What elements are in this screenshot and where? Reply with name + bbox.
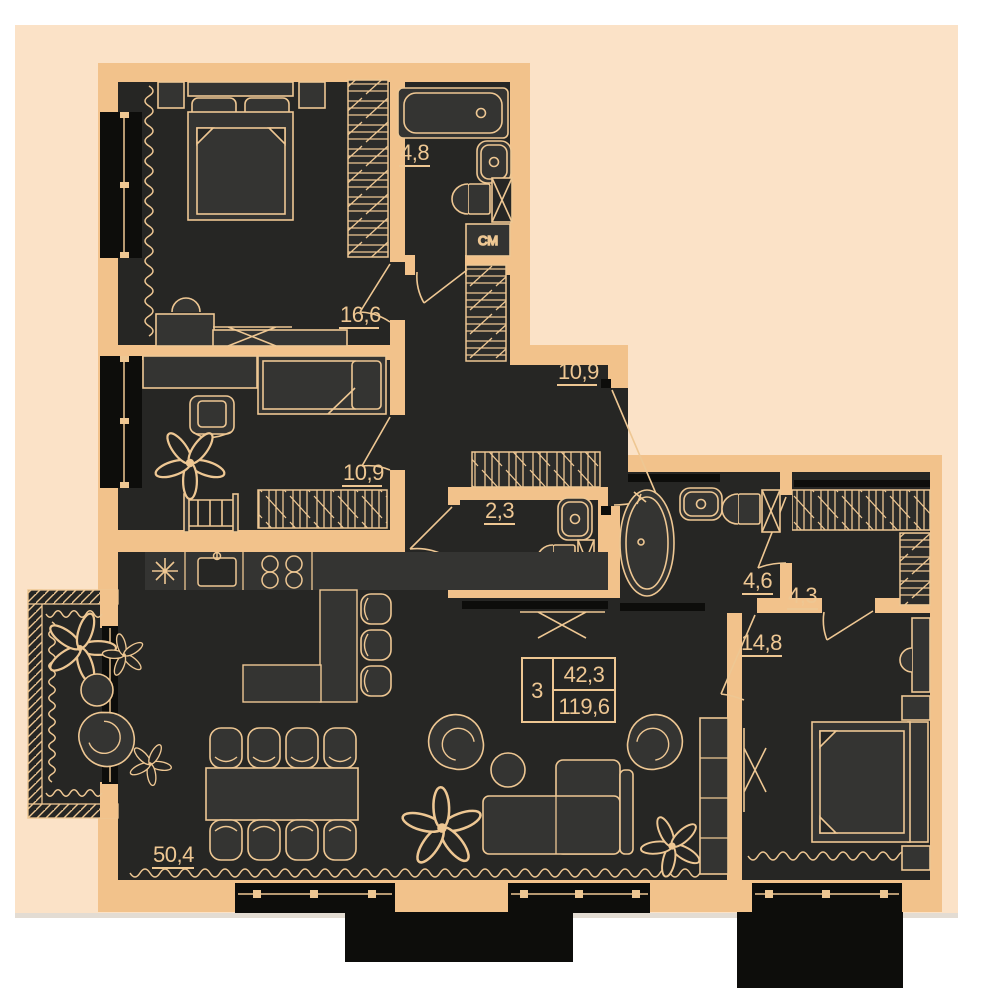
svg-text:4,3: 4,3 (788, 583, 817, 608)
nightstand (902, 696, 930, 720)
room-label-bedroom-main: 16,6 (339, 302, 381, 329)
wardrobe-hatch-icon (900, 533, 930, 605)
bed-icon (812, 722, 928, 842)
washing-machine-icon (492, 178, 512, 222)
svg-text:2,3: 2,3 (485, 498, 514, 523)
wardrobe-hatch-icon (792, 490, 930, 530)
bathtub-icon (398, 88, 508, 138)
room-label-bathroom-master: 4,6 (742, 568, 773, 595)
window-living-2 (508, 883, 650, 913)
svg-text:14,8: 14,8 (741, 630, 782, 655)
wardrobe-hatch-icon (472, 452, 600, 487)
room-label-bathroom-top: 4,8 (399, 140, 430, 167)
sink-icon (558, 498, 592, 540)
room-label-wardrobe-room: 4,3 (787, 583, 818, 610)
nightstand (158, 82, 184, 108)
balcony-table (81, 674, 113, 706)
window-bedroom-second (752, 883, 902, 913)
window-kids-room (100, 356, 142, 488)
dining-table-icon (206, 768, 358, 820)
svg-text:10,9: 10,9 (558, 359, 599, 384)
wardrobe-hatch-icon (466, 265, 506, 361)
wardrobe-hatch-icon (258, 490, 387, 528)
room-label-bedroom-second: 14,8 (740, 630, 782, 657)
sink-icon (477, 141, 511, 183)
window-living-1 (235, 883, 395, 913)
washing-machine-icon (762, 490, 780, 532)
room-label-kids-room: 10,9 (342, 460, 384, 487)
stool (361, 594, 391, 624)
desk-chair (190, 396, 234, 438)
svg-text:4,8: 4,8 (400, 140, 429, 165)
living-area-value: 42,3 (564, 662, 605, 687)
desk (156, 314, 214, 346)
nightstand (299, 82, 325, 108)
floor-plan-page: СМ (0, 0, 1000, 1000)
balcony-railing-left (28, 590, 42, 818)
stool (361, 630, 391, 660)
svg-text:10,9: 10,9 (343, 460, 384, 485)
wardrobe-hatch-icon (348, 80, 388, 257)
svg-text:16,6: 16,6 (340, 302, 381, 327)
floor-plan-canvas: СМ (0, 0, 1000, 1000)
nightstand (902, 846, 930, 870)
toilet-icon (722, 494, 760, 524)
washing-machine-place: СМ (466, 224, 510, 256)
room-label-living-kitchen: 50,4 (152, 842, 194, 869)
shelving-unit (700, 718, 728, 874)
svg-text:4,6: 4,6 (743, 568, 772, 593)
toilet-icon (452, 184, 490, 214)
bathtub-icon (620, 490, 674, 596)
coffee-table (491, 753, 525, 787)
total-area-value: 119,6 (559, 694, 610, 719)
sink-icon (680, 488, 722, 520)
room-label-wc: 2,3 (484, 498, 515, 525)
desk (143, 356, 257, 388)
rooms-count-value: 3 (531, 678, 543, 703)
svg-text:50,4: 50,4 (153, 842, 194, 867)
bed-icon (258, 356, 386, 414)
stool (361, 666, 391, 696)
washing-machine-label: СМ (478, 233, 498, 248)
room-label-hallway: 10,9 (557, 359, 599, 386)
window-bedroom-main (100, 112, 142, 258)
